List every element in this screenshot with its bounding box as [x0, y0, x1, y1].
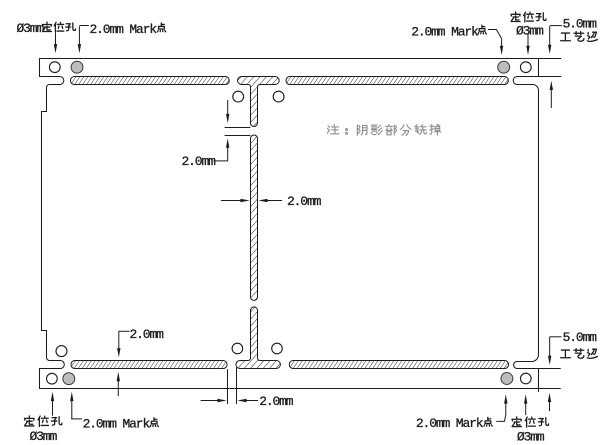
svg-text:2.0mm Mark: 2.0mm Mark [411, 24, 479, 39]
svg-text:Ø3mm: Ø3mm [517, 430, 545, 445]
svg-text:5.0mm: 5.0mm [563, 330, 598, 345]
svg-text:2.0mm Mark: 2.0mm Mark [90, 22, 158, 37]
svg-text:2.0mm: 2.0mm [182, 154, 217, 169]
svg-text:Ø3mm: Ø3mm [30, 429, 58, 444]
svg-text:Ø3mm: Ø3mm [516, 24, 544, 39]
svg-text:2.0mm: 2.0mm [259, 394, 294, 409]
svg-text:Ø3mm: Ø3mm [17, 21, 45, 36]
svg-text:2.0mm Mark: 2.0mm Mark [83, 417, 151, 432]
svg-text:5.0mm: 5.0mm [563, 16, 598, 31]
svg-text:2.0mm: 2.0mm [130, 327, 165, 342]
svg-text:2.0mm Mark: 2.0mm Mark [416, 416, 484, 431]
svg-text:2.0mm: 2.0mm [287, 194, 322, 209]
